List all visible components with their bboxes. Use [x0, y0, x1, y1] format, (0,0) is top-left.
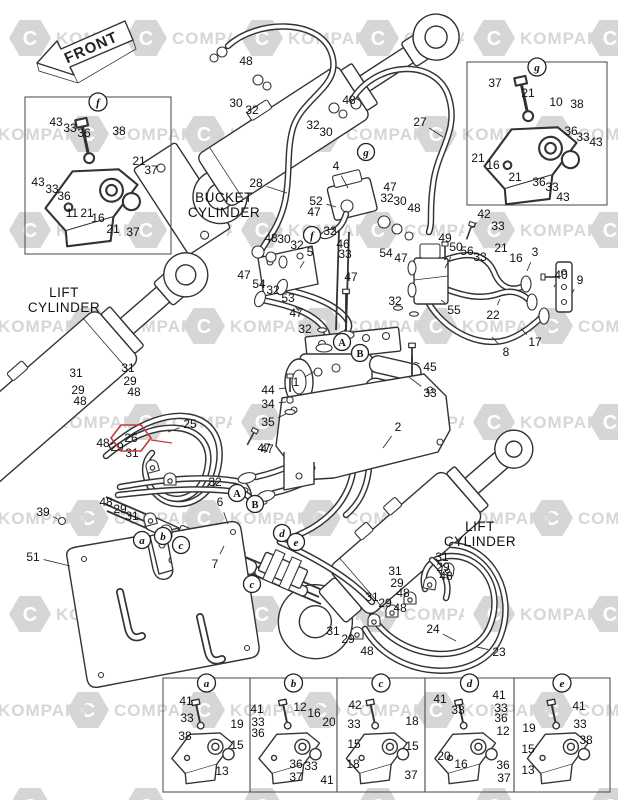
part-number: 48: [360, 644, 374, 658]
part-label-37: 37: [404, 768, 418, 782]
part-number: 43: [556, 190, 570, 204]
part-label-32: 32: [306, 118, 320, 132]
part-label-37: 37: [488, 76, 502, 90]
part-number: 48: [396, 586, 410, 600]
part-label-21: 21: [471, 151, 485, 165]
part-label-30: 30: [393, 194, 407, 208]
part-number: 43: [589, 135, 603, 149]
part-label-41: 41: [433, 692, 447, 706]
part-label-36: 36: [289, 757, 303, 771]
parts-diagram-page: C KOMPART C COMPART C COMPART C KOMPART …: [0, 0, 618, 800]
part-number: 12: [496, 724, 510, 738]
part-number: 11: [66, 206, 79, 220]
part-number: 17: [528, 335, 542, 349]
part-number: 33: [451, 703, 465, 717]
part-number: 9: [577, 273, 584, 287]
ref-marker-b: b: [155, 528, 172, 545]
part-number: 54: [379, 246, 393, 260]
detail-box-letter: e: [560, 678, 565, 690]
part-label-47: 47: [307, 205, 321, 219]
part-label-12: 12: [293, 700, 307, 714]
part-label-56: 56: [460, 244, 474, 258]
part-number: 53: [281, 291, 295, 305]
part-number: 18: [346, 757, 360, 771]
part-label-43: 43: [589, 135, 603, 149]
part-number: 21: [521, 86, 535, 100]
part-number: 4: [333, 159, 340, 173]
part-number: 10: [549, 95, 563, 109]
part-number: 27: [413, 115, 427, 129]
part-number: 19: [230, 717, 244, 731]
part-label-16: 16: [509, 251, 523, 265]
part-label-19: 19: [522, 721, 536, 735]
part-label-33: 33: [180, 711, 194, 725]
part-number: 25: [183, 417, 197, 431]
part-number: 54: [252, 277, 266, 291]
part-label-37: 37: [144, 163, 158, 177]
part-number: 48: [96, 436, 110, 450]
part-number: 21: [494, 241, 508, 255]
part-label-29: 29: [378, 596, 392, 610]
part-label-36: 36: [532, 175, 546, 189]
part-number: 37: [126, 225, 140, 239]
part-number: 33: [423, 386, 437, 400]
part-number: 48: [99, 495, 113, 509]
part-label-48: 48: [96, 436, 110, 450]
part-number: 21: [508, 170, 522, 184]
exploded-parts-diagram: C KOMPART C COMPART C COMPART C KOMPART …: [0, 0, 618, 800]
part-label-38: 38: [178, 729, 192, 743]
part-number: 37: [488, 76, 502, 90]
part-label-43: 43: [49, 115, 63, 129]
detail-box-letter: g: [533, 62, 540, 74]
part-label-20: 20: [437, 749, 451, 763]
part-number: 19: [522, 721, 536, 735]
part-number: 51: [26, 550, 40, 564]
part-number: 32: [208, 475, 222, 489]
part-label-37: 37: [497, 771, 511, 785]
part-label-21: 21: [521, 86, 535, 100]
part-number: 41: [320, 773, 334, 787]
part-number: 30: [319, 125, 333, 139]
part-number: 31: [365, 590, 379, 604]
part-number: 21: [471, 151, 485, 165]
part-number: 16: [454, 757, 468, 771]
part-label-13: 13: [215, 764, 229, 778]
detail-box-letter: c: [379, 678, 384, 690]
part-number: 23: [492, 645, 506, 659]
part-label-47: 47: [289, 306, 303, 320]
part-label-38: 38: [570, 97, 584, 111]
part-number: 16: [486, 158, 500, 172]
part-label-16: 16: [91, 211, 105, 225]
part-label-30: 30: [277, 232, 291, 246]
part-number: 32: [306, 118, 320, 132]
part-number: 20: [437, 749, 451, 763]
part-label-36: 36: [496, 758, 510, 772]
part-number: 33: [576, 130, 590, 144]
part-number: 36: [289, 757, 303, 771]
part-label-33: 33: [573, 717, 587, 731]
area-label-line: CYLINDER: [188, 205, 260, 220]
part-number: 20: [322, 715, 336, 729]
part-number: 31: [326, 624, 340, 638]
part-number: 32: [266, 283, 280, 297]
part-number: 33: [573, 717, 587, 731]
part-label-31: 31: [125, 446, 139, 460]
part-number: 32: [245, 103, 259, 117]
part-label-16: 16: [454, 757, 468, 771]
detail-box-letter: d: [467, 678, 473, 690]
part-number: 41: [572, 699, 586, 713]
part-number: 30: [393, 194, 407, 208]
ref-marker-c: c: [173, 537, 190, 554]
ref-marker-letter: g: [362, 147, 369, 159]
part-label-41: 41: [320, 773, 334, 787]
area-label-line: CYLINDER: [28, 300, 100, 315]
part-label-29: 29: [341, 632, 355, 646]
part-number: 30: [277, 232, 291, 246]
part-number: 31: [69, 366, 83, 380]
part-label-43: 43: [31, 175, 45, 189]
part-label-32: 32: [266, 283, 280, 297]
part-number: 15: [405, 739, 419, 753]
part-number: 33: [180, 711, 194, 725]
part-label-19: 19: [230, 717, 244, 731]
part-number: 37: [404, 768, 418, 782]
part-label-48: 48: [407, 201, 421, 215]
part-label-33: 33: [576, 130, 590, 144]
ref-marker-f: f: [304, 227, 321, 244]
part-label-15: 15: [405, 739, 419, 753]
part-label-36: 36: [494, 711, 508, 725]
ref-marker-letter: B: [356, 349, 363, 360]
part-number: 36: [532, 175, 546, 189]
part-number: 13: [521, 763, 535, 777]
part-number: 35: [261, 415, 275, 429]
part-number: 33: [491, 219, 505, 233]
part-number: 36: [496, 758, 510, 772]
part-number: 37: [289, 770, 303, 784]
part-label-32: 32: [388, 294, 402, 308]
part-number: 29: [341, 632, 355, 646]
part-number: 48: [439, 569, 453, 583]
part-label-16: 16: [486, 158, 500, 172]
part-number: 39: [36, 505, 50, 519]
ref-marker-letter: e: [294, 537, 299, 549]
part-number: 48: [407, 201, 421, 215]
part-number: 28: [249, 176, 263, 190]
part-label-32: 32: [208, 475, 222, 489]
part-number: 48: [73, 394, 87, 408]
part-number: 33: [338, 247, 352, 261]
part-number: 47: [237, 268, 251, 282]
part-number: 56: [460, 244, 474, 258]
part-number: 44: [261, 383, 275, 397]
part-label-33: 33: [491, 219, 505, 233]
part-number: 38: [112, 124, 126, 138]
part-number: 18: [405, 714, 419, 728]
part-number: 34: [261, 397, 275, 411]
part-label-33: 33: [338, 247, 352, 261]
part-number: 48: [239, 54, 253, 68]
part-label-33: 33: [63, 121, 77, 135]
part-label-15: 15: [230, 738, 244, 752]
ref-marker-B: B: [352, 345, 369, 362]
part-number: 42: [348, 698, 362, 712]
part-number: 47: [344, 270, 358, 284]
part-label-20: 20: [322, 715, 336, 729]
part-number: 3: [532, 245, 539, 259]
part-label-47: 47: [344, 270, 358, 284]
part-number: 43: [31, 175, 45, 189]
ref-marker-e: e: [288, 534, 305, 551]
part-number: 15: [521, 742, 535, 756]
part-label-48: 48: [360, 644, 374, 658]
part-label-48: 48: [99, 495, 113, 509]
part-label-33: 33: [304, 759, 318, 773]
part-number: 16: [307, 706, 321, 720]
part-number: 29: [378, 596, 392, 610]
part-label-33: 33: [473, 250, 487, 264]
part-label-54: 54: [252, 277, 266, 291]
highlighted-part-number: 26: [124, 431, 138, 445]
part-number: 7: [212, 557, 219, 571]
ref-marker-a: a: [134, 532, 151, 549]
part-label-37: 37: [289, 770, 303, 784]
area-label-line: LIFT: [465, 519, 495, 534]
ref-marker-letter: c: [250, 579, 255, 591]
area-label-line: CYLINDER: [444, 534, 516, 549]
part-label-48: 48: [342, 93, 356, 107]
part-number: 42: [477, 207, 491, 221]
part-number: 48: [393, 601, 407, 615]
ref-marker-letter: d: [279, 528, 285, 540]
part-number: 5: [307, 245, 314, 259]
part-label-16: 16: [307, 706, 321, 720]
part-number: 47: [394, 251, 408, 265]
detail-box-letter: b: [291, 678, 297, 690]
part-number: 41: [433, 692, 447, 706]
part-number: 43: [49, 115, 63, 129]
part-number: 36: [77, 126, 91, 140]
part-number: 33: [304, 759, 318, 773]
part-number: 31: [125, 446, 139, 460]
part-number: 45: [423, 360, 437, 374]
part-number: 30: [229, 96, 243, 110]
part-label-48: 48: [396, 586, 410, 600]
part-label-36: 36: [251, 726, 265, 740]
part-label-38: 38: [579, 733, 593, 747]
part-number: 41: [492, 688, 506, 702]
part-label-41: 41: [572, 699, 586, 713]
part-number: 16: [509, 251, 523, 265]
part-number: 48: [127, 385, 141, 399]
ref-marker-A: A: [334, 334, 351, 351]
part-number: 37: [497, 771, 511, 785]
part-number: 16: [91, 211, 105, 225]
part-label-33: 33: [347, 717, 361, 731]
part-label-33: 33: [451, 703, 465, 717]
part-number: 40: [554, 268, 568, 282]
part-label-21: 21: [106, 222, 120, 236]
part-label-31: 31: [125, 509, 139, 523]
area-label-line: BUCKET: [195, 190, 253, 205]
part-number: 33: [63, 121, 77, 135]
part-label-15: 15: [347, 737, 361, 751]
part-label-13: 13: [521, 763, 535, 777]
area-label-line: LIFT: [49, 285, 79, 300]
part-number: 32: [298, 322, 312, 336]
part-label-32: 32: [298, 322, 312, 336]
part-number: 31: [125, 509, 139, 523]
ref-marker-B: B: [247, 496, 264, 513]
part-label-30: 30: [229, 96, 243, 110]
part-number: 47: [257, 441, 271, 455]
part-number: 47: [307, 205, 321, 219]
part-label-32: 32: [323, 224, 337, 238]
detail-box-letter: a: [204, 678, 210, 690]
part-label-32: 32: [245, 103, 259, 117]
part-number: 38: [570, 97, 584, 111]
part-number: 33: [473, 250, 487, 264]
part-label-12: 12: [496, 724, 510, 738]
ref-marker-letter: a: [139, 535, 145, 547]
part-label-41: 41: [250, 702, 264, 716]
ref-marker-letter: c: [179, 540, 184, 552]
part-number: 1: [293, 375, 300, 389]
part-label-48: 48: [264, 231, 278, 245]
ref-marker-letter: A: [233, 489, 241, 500]
part-label-41: 41: [492, 688, 506, 702]
part-label-37: 37: [126, 225, 140, 239]
part-number: 47: [289, 306, 303, 320]
part-number: 31: [121, 361, 135, 375]
part-label-48: 48: [239, 54, 253, 68]
part-label-32: 32: [380, 191, 394, 205]
ref-marker-letter: A: [338, 338, 346, 349]
part-number: 32: [380, 191, 394, 205]
part-label-43: 43: [556, 190, 570, 204]
part-label-54: 54: [379, 246, 393, 260]
part-label-36: 36: [57, 189, 71, 203]
part-number: 12: [293, 700, 307, 714]
part-number: 48: [342, 93, 356, 107]
part-label-48: 48: [73, 394, 87, 408]
part-label-21: 21: [494, 241, 508, 255]
part-number: 15: [230, 738, 244, 752]
part-label-36: 36: [77, 126, 91, 140]
part-label-47: 47: [257, 441, 271, 455]
part-label-31: 31: [365, 590, 379, 604]
part-label-48: 48: [127, 385, 141, 399]
ref-marker-A: A: [229, 485, 246, 502]
ref-marker-g: g: [358, 144, 375, 161]
part-label-31: 31: [326, 624, 340, 638]
part-label-47: 47: [237, 268, 251, 282]
ref-marker-letter: B: [251, 500, 258, 511]
part-label-30: 30: [319, 125, 333, 139]
part-number: 36: [251, 726, 265, 740]
part-number: 37: [144, 163, 158, 177]
part-number: 13: [215, 764, 229, 778]
part-label-47: 47: [394, 251, 408, 265]
part-label-31: 31: [121, 361, 135, 375]
part-number: 32: [323, 224, 337, 238]
part-number: 38: [579, 733, 593, 747]
part-number: 21: [106, 222, 120, 236]
part-number: 24: [426, 622, 440, 636]
part-number: 22: [486, 308, 500, 322]
part-number: 2: [395, 420, 402, 434]
part-number: 6: [217, 495, 224, 509]
part-label-10: 10: [549, 95, 563, 109]
part-number: 41: [250, 702, 264, 716]
part-number: 33: [347, 717, 361, 731]
part-label-31: 31: [69, 366, 83, 380]
part-label-41: 41: [179, 694, 193, 708]
part-label-21: 21: [508, 170, 522, 184]
part-number: 32: [388, 294, 402, 308]
part-label-18: 18: [405, 714, 419, 728]
part-number: 8: [503, 345, 510, 359]
part-number: 48: [264, 231, 278, 245]
part-label-15: 15: [521, 742, 535, 756]
part-label-48: 48: [393, 601, 407, 615]
part-number: 36: [57, 189, 71, 203]
ref-marker-letter: b: [160, 531, 166, 543]
ref-marker-c: c: [244, 576, 261, 593]
part-label-32: 32: [290, 238, 304, 252]
part-label-11: 11: [66, 206, 79, 220]
area-label: BUCKETCYLINDER: [188, 190, 260, 220]
part-label-42: 42: [348, 698, 362, 712]
part-number: 32: [290, 238, 304, 252]
part-label-18: 18: [346, 757, 360, 771]
part-number: 15: [347, 737, 361, 751]
part-label-48: 48: [439, 569, 453, 583]
part-label-38: 38: [112, 124, 126, 138]
part-number: 41: [179, 694, 193, 708]
part-number: 38: [178, 729, 192, 743]
part-number: 36: [494, 711, 508, 725]
part-number: 55: [447, 303, 461, 317]
